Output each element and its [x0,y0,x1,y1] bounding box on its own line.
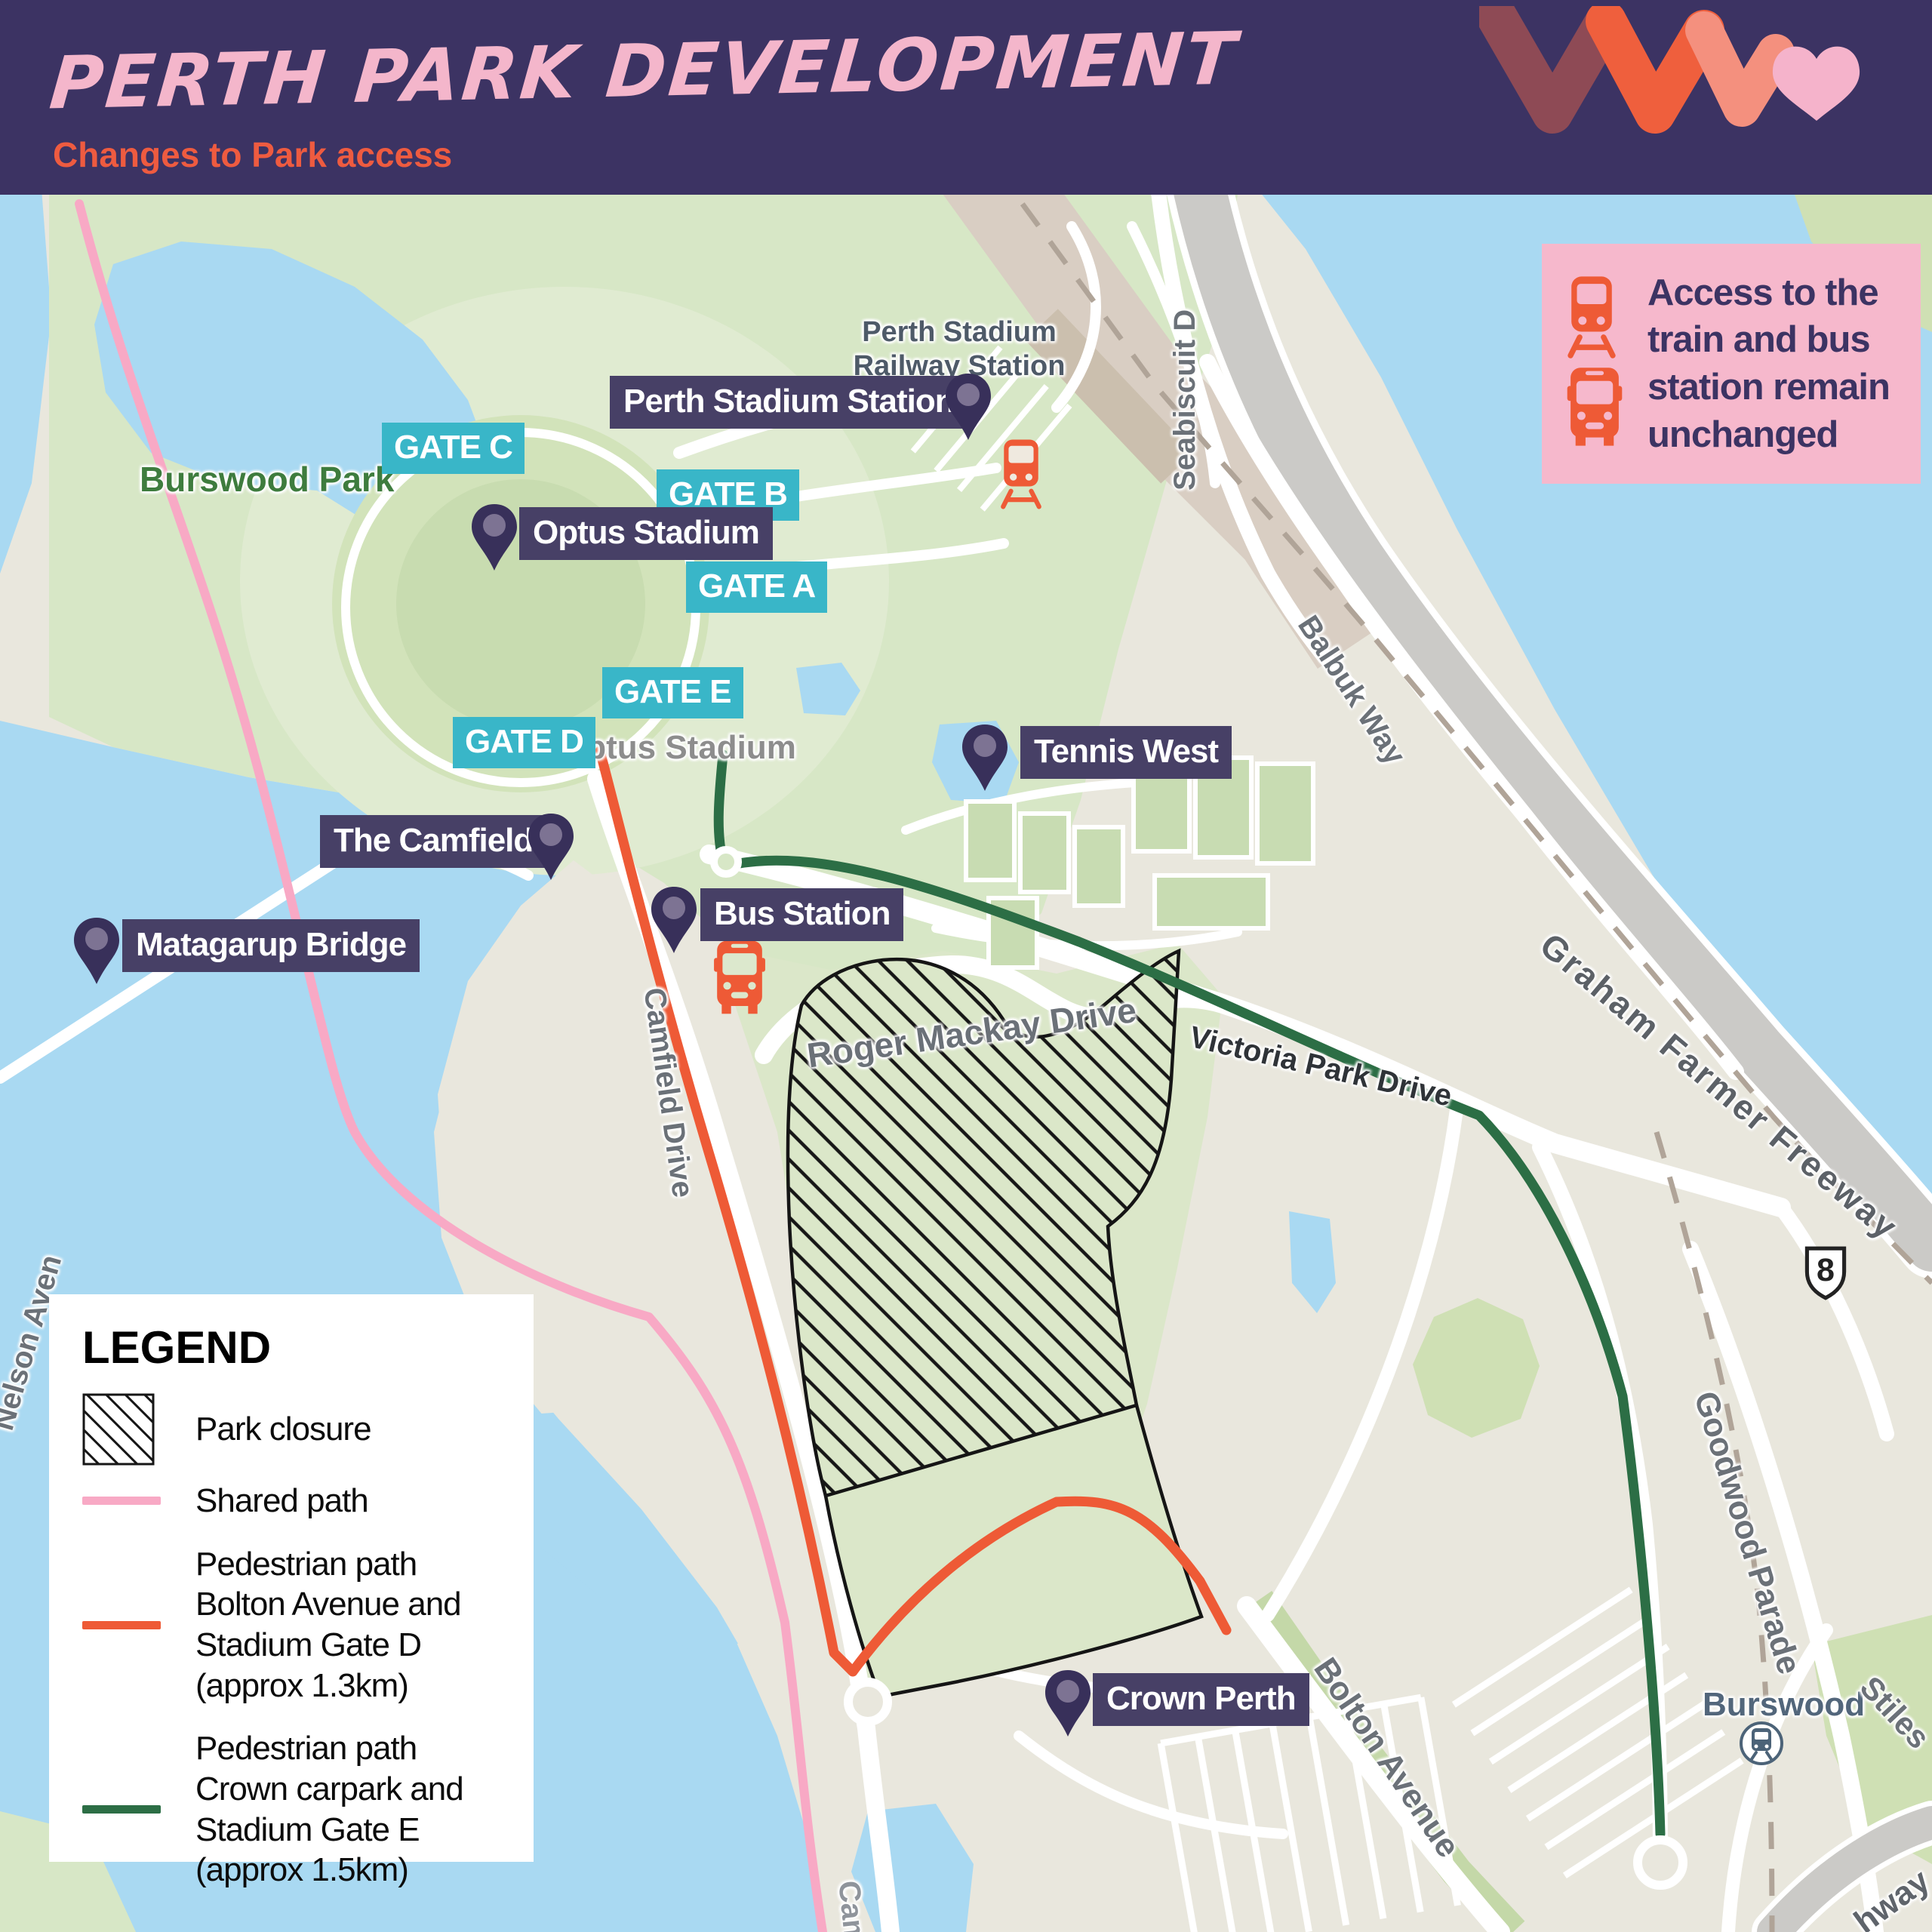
gate-e-label: GATE E [602,667,743,718]
legend-item-pedestrian-path-gate-d: Pedestrian path Bolton Avenue and Stadiu… [82,1544,500,1706]
legend-item-park-closure: Park closure [82,1393,500,1466]
route-8-number: 8 [1817,1252,1835,1288]
legend-panel: LEGEND Park closure Shared path Pedestri… [49,1294,534,1862]
pin-the-camfield [526,812,576,881]
header-bar: PERTH PARK DEVELOPMENT Changes to Park a… [0,0,1932,195]
legend-title: LEGEND [82,1321,500,1374]
bus-icon [712,939,767,1017]
callout-icons [1561,275,1631,453]
callout-text: Access to the train and bus station rema… [1647,269,1901,459]
orange-path-swatch [82,1621,161,1629]
poi-label-tennis-west: Tennis West [1020,726,1232,779]
pin-optus-stadium [469,503,519,572]
pin-tennis-west [960,723,1010,792]
poi-label-the-camfield: The Camfield [320,815,546,868]
transport-access-callout: Access to the train and bus station rema… [1542,244,1921,484]
pin-bus-station [649,885,699,955]
pin-crown-perth [1043,1669,1093,1738]
perth-park-development-map: 8 Burswood Park Perth Stadium Railway St… [0,0,1932,1932]
road-label-seabiscuit-drive: Seabiscuit D [1168,309,1202,491]
legend-item-pedestrian-path-gate-e: Pedestrian path Crown carpark and Stadiu… [82,1728,500,1890]
area-label-burswood: Burswood [1703,1686,1865,1724]
shared-path-swatch [82,1497,161,1505]
park-closure-swatch [82,1393,155,1466]
squiggle-heart-logo [1479,6,1887,134]
gate-a-label: GATE A [686,561,827,613]
green-path-swatch [82,1805,161,1814]
pin-matagarup-bridge [72,916,122,986]
train-icon [998,438,1044,510]
route-8-shield: 8 [1802,1244,1849,1304]
gate-d-label: GATE D [453,717,595,768]
poi-label-perth-stadium-station: Perth Stadium Station [610,376,968,429]
poi-label-crown-perth: Crown Perth [1093,1673,1309,1726]
poi-label-bus-station: Bus Station [700,888,903,941]
pin-perth-stadium-station [943,372,993,441]
poi-label-matagarup-bridge: Matagarup Bridge [122,919,420,972]
poi-label-optus-stadium: Optus Stadium [519,507,773,560]
bus-icon [1561,366,1631,453]
page-subtitle: Changes to Park access [53,134,452,175]
train-icon [1561,275,1631,363]
page-title: PERTH PARK DEVELOPMENT [47,17,1241,126]
burswood-station-icon [1737,1719,1786,1767]
legend-item-shared-path: Shared path [82,1481,500,1521]
area-label-burswood-park: Burswood Park [140,459,394,500]
gate-c-label: GATE C [382,423,525,474]
